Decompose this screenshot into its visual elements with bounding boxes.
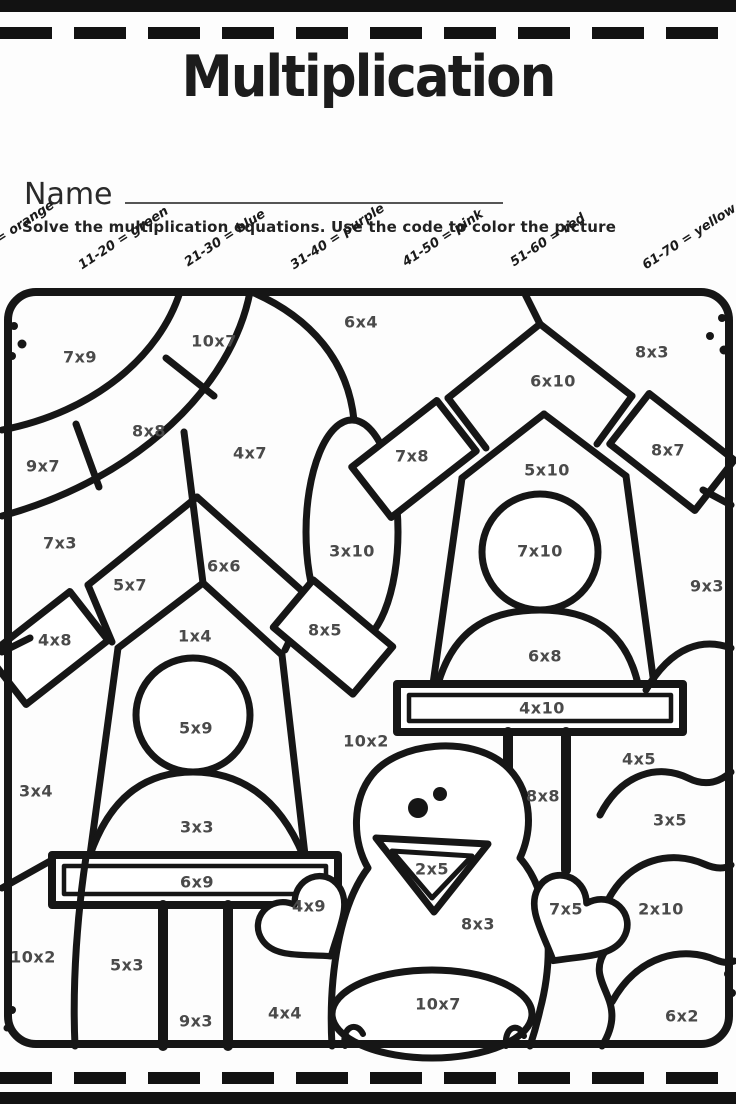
corner-arcs [2,292,250,516]
worksheet-page: Multiplication Name Solve the multiplica… [0,0,736,1104]
bottom-border-bar [0,1092,736,1104]
chick [249,746,637,1058]
left-background-lines [2,638,86,1046]
eye-left [408,798,428,818]
eye-right [433,787,447,801]
coloring-line-art [0,0,736,1104]
bottom-dashed-border [0,1072,736,1084]
sky-divider [524,292,540,324]
